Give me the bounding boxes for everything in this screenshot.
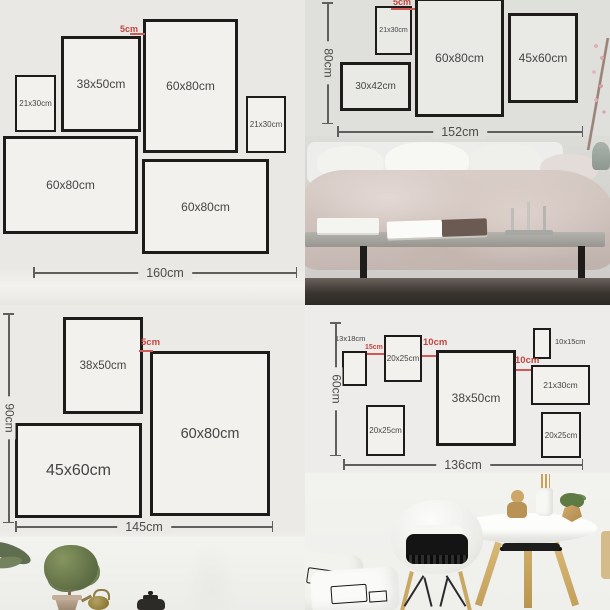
gap-line — [139, 350, 153, 352]
gap-annotation: 5cm — [141, 338, 160, 348]
frame-60x80: 60x80cm — [142, 159, 269, 254]
frame-size-label: 10x15cm — [555, 338, 585, 346]
gap-annotation: 5cm — [393, 0, 411, 7]
frame-21x30: 21x30cm — [246, 96, 286, 153]
gap-line — [391, 8, 415, 10]
black-sweater — [406, 534, 468, 564]
total-height-dimension: 90cm — [2, 313, 16, 523]
frame-30x42: 30x42cm — [340, 62, 411, 111]
total-width-dimension: 152cm — [337, 125, 583, 139]
frame-13x18 — [342, 351, 367, 386]
frame-21x30: 21x30cm — [375, 6, 412, 55]
gap-annotation: 10cm — [423, 338, 447, 348]
layout-diagram-145cm: 38x50cm 60x80cm 45x60cm 5cm 90cm 145cm — [0, 305, 305, 610]
frame-45x60: 45x60cm — [508, 13, 578, 103]
layout-diagram-160cm: 21x30cm 38x50cm 60x80cm 21x30cm 60x80cm … — [0, 0, 305, 305]
toy-figure-body — [507, 502, 527, 518]
white-cup — [536, 488, 553, 516]
bedroom-photo — [305, 136, 610, 305]
white-vase — [185, 541, 237, 610]
frame-45x60: 45x60cm — [15, 423, 142, 518]
vase — [592, 142, 610, 170]
frame-38x50: 38x50cm — [436, 350, 516, 446]
chair-wire-strut — [439, 577, 448, 607]
frame-20x25: 20x25cm — [384, 335, 422, 382]
frame-21x30: 21x30cm — [531, 365, 590, 405]
table-leg — [524, 545, 532, 608]
frame-21x30: 21x30cm — [15, 75, 56, 132]
gap-line — [516, 369, 531, 371]
open-book — [387, 218, 488, 238]
teapot-body — [137, 599, 165, 610]
gap-line — [367, 353, 384, 355]
layout-diagram-bedroom-152cm: 21x30cm 30x42cm 60x80cm 45x60cm 5cm 80cm… — [305, 0, 610, 305]
leaf — [0, 555, 23, 570]
frame-38x50: 38x50cm — [61, 36, 141, 132]
pillow-doodle — [369, 590, 388, 602]
watering-can-body — [88, 596, 109, 610]
total-width-dimension: 136cm — [343, 458, 583, 472]
candlestick-base — [505, 230, 553, 235]
pot-body — [54, 600, 80, 610]
total-height-dimension: 80cm — [321, 2, 335, 124]
total-width-dimension: 145cm — [15, 520, 273, 534]
chair-table-photo — [305, 473, 610, 610]
topiary-foliage — [44, 545, 98, 591]
frame-20x25: 20x25cm — [541, 412, 581, 458]
pot-rim — [52, 595, 82, 600]
chair-wire-strut — [423, 577, 432, 607]
table-leg — [552, 542, 579, 607]
frame-60x80: 60x80cm — [3, 136, 138, 234]
side-chair-edge — [601, 531, 610, 579]
frame-60x80: 60x80cm — [415, 0, 504, 117]
pillow-doodle — [330, 584, 367, 604]
gap-line — [130, 33, 145, 35]
magazine-stack — [317, 218, 379, 233]
frame-20x25: 20x25cm — [366, 405, 405, 456]
plant-decor-photo — [0, 537, 305, 610]
total-height-dimension: 60cm — [329, 322, 343, 456]
gap-annotation: 15cm — [365, 344, 383, 351]
layout-diagram-136cm: 13x18cm 20x25cm 38x50cm 10x15cm 21x30cm … — [305, 305, 610, 610]
frame-38x50: 38x50cm — [63, 317, 143, 414]
floor-shadow — [305, 278, 610, 305]
frame-60x80: 60x80cm — [150, 351, 270, 516]
flower-branch — [586, 38, 610, 150]
total-width-dimension: 160cm — [33, 266, 297, 280]
frame-60x80: 60x80cm — [143, 19, 238, 153]
table-hub — [502, 543, 560, 551]
gap-line — [422, 355, 436, 357]
gallery-wall-layout-montage: 21x30cm 38x50cm 60x80cm 21x30cm 60x80cm … — [0, 0, 610, 610]
gap-annotation: 10cm — [515, 356, 539, 366]
